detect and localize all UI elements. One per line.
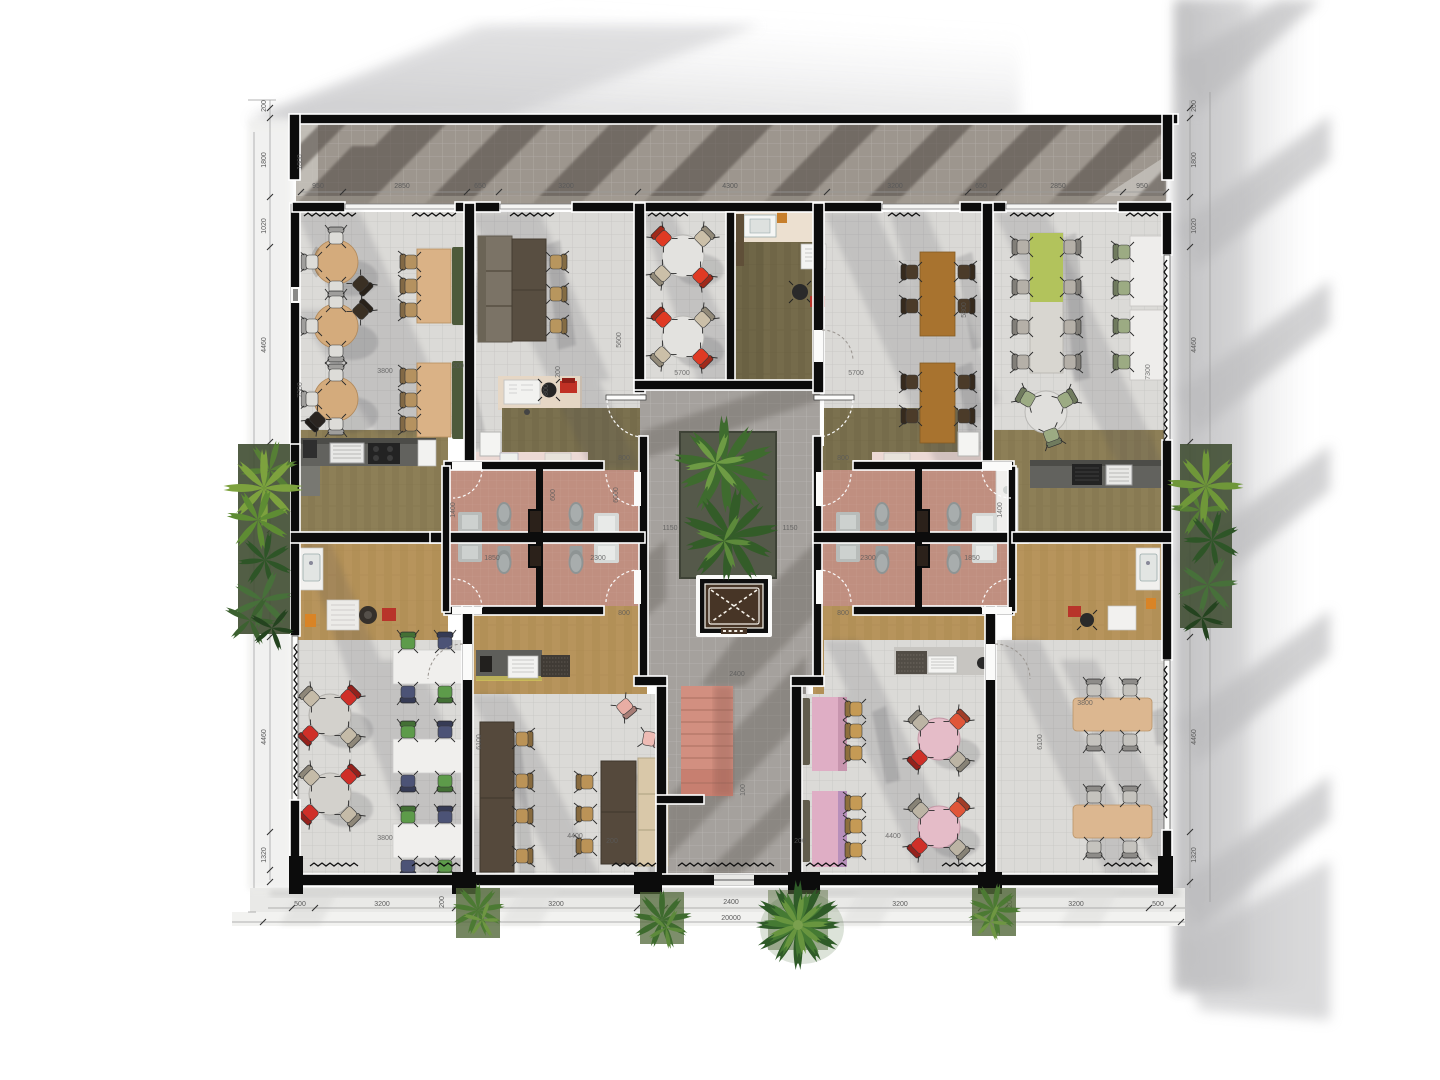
svg-text:800: 800 [618,455,630,462]
svg-text:2400: 2400 [729,671,745,678]
svg-text:1800: 1800 [261,152,268,168]
svg-text:200: 200 [439,896,446,908]
svg-text:3200: 3200 [1068,901,1084,908]
svg-text:800: 800 [837,610,849,617]
svg-text:4300: 4300 [722,183,738,190]
svg-text:650: 650 [474,183,486,190]
svg-text:3200: 3200 [558,183,574,190]
svg-text:1850: 1850 [484,555,500,562]
svg-text:1320: 1320 [261,847,268,863]
svg-text:3800: 3800 [377,368,393,375]
svg-text:5800: 5800 [961,302,968,318]
svg-text:6000: 6000 [613,487,620,503]
svg-text:200: 200 [261,100,268,112]
svg-text:200: 200 [794,838,806,845]
svg-text:500: 500 [294,901,306,908]
svg-text:950: 950 [312,183,324,190]
svg-text:3800: 3800 [1077,700,1093,707]
svg-text:1020: 1020 [261,218,268,234]
svg-text:200: 200 [606,838,618,845]
svg-text:4460: 4460 [261,337,268,353]
svg-text:7300: 7300 [1145,364,1152,380]
svg-text:800: 800 [837,455,849,462]
svg-text:1800: 1800 [1191,152,1198,168]
svg-text:3800: 3800 [377,835,393,842]
svg-text:2850: 2850 [1050,183,1066,190]
svg-text:200: 200 [452,363,464,370]
svg-text:3200: 3200 [887,183,903,190]
svg-text:4400: 4400 [885,833,901,840]
svg-text:800: 800 [543,384,550,396]
svg-text:6100: 6100 [1037,734,1044,750]
svg-text:1400: 1400 [997,502,1004,518]
svg-text:3200: 3200 [374,901,390,908]
svg-text:4460: 4460 [1191,337,1198,353]
svg-text:200: 200 [555,366,562,378]
svg-text:950: 950 [1136,183,1148,190]
svg-text:1400: 1400 [450,502,457,518]
svg-text:4460: 4460 [261,729,268,745]
svg-text:2300: 2300 [860,555,876,562]
svg-text:2400: 2400 [723,899,739,906]
svg-text:500: 500 [1152,901,1164,908]
svg-text:600: 600 [550,489,557,501]
svg-text:3200: 3200 [892,901,908,908]
svg-text:20000: 20000 [721,915,741,922]
svg-text:5600: 5600 [616,332,623,348]
svg-text:3200: 3200 [548,901,564,908]
svg-text:1150: 1150 [662,525,677,532]
svg-text:1020: 1020 [1191,218,1198,234]
svg-text:1150: 1150 [782,525,797,532]
svg-text:100: 100 [740,784,747,796]
svg-text:1320: 1320 [1191,847,1198,863]
svg-text:7300: 7300 [297,382,304,398]
svg-text:1850: 1850 [964,555,980,562]
svg-text:2300: 2300 [590,555,606,562]
svg-text:5700: 5700 [848,370,864,377]
svg-text:4460: 4460 [1191,729,1198,745]
svg-text:4400: 4400 [567,833,583,840]
svg-text:650: 650 [975,183,987,190]
svg-text:5700: 5700 [674,370,690,377]
svg-text:2850: 2850 [394,183,410,190]
svg-text:1800: 1800 [297,154,304,170]
svg-text:200: 200 [1191,100,1198,112]
svg-text:6100: 6100 [476,734,483,750]
svg-text:800: 800 [618,610,630,617]
